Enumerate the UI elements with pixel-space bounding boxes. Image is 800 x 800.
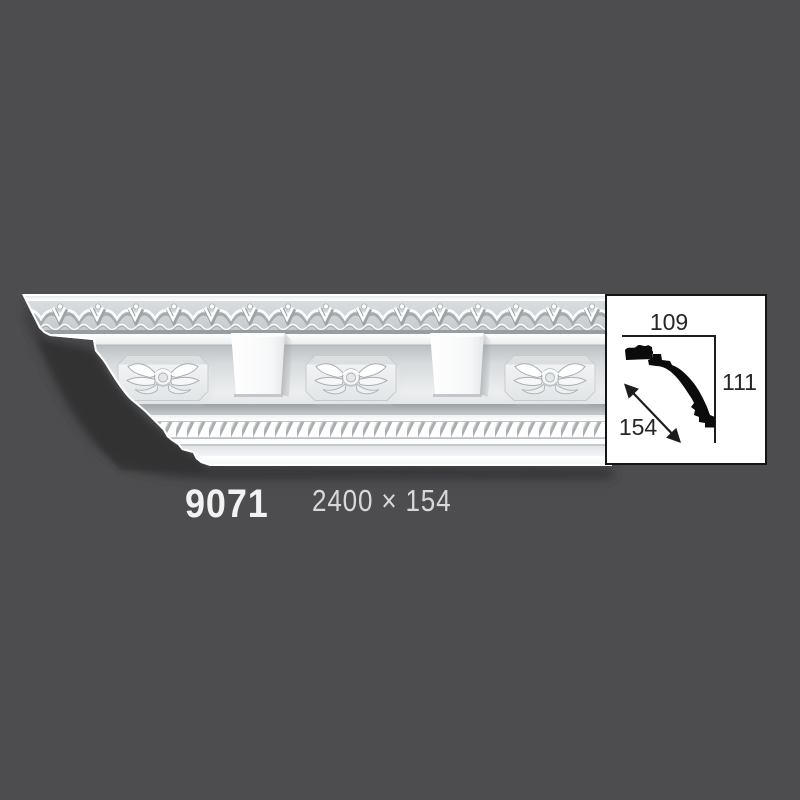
- product-card: 109 111 154 90712400 × 154: [0, 0, 800, 800]
- rosette-panel: [306, 356, 399, 404]
- profile-diagram: 109 111 154: [605, 294, 767, 465]
- modillion-block: [231, 333, 293, 397]
- rosette-panel: [118, 356, 211, 404]
- profile-top-width-label: 109: [649, 309, 687, 335]
- leaf-frieze-band: [20, 302, 614, 331]
- modillion-block: [430, 333, 492, 397]
- profile-dimension-box: 109 111 154: [605, 294, 767, 465]
- product-code: 9071: [185, 484, 269, 524]
- rosette-panel: [505, 356, 598, 404]
- profile-height-label: 111: [722, 369, 757, 395]
- product-size: 2400 × 154: [312, 485, 451, 516]
- caption: 90712400 × 154: [185, 484, 478, 524]
- profile-diagonal-label: 154: [618, 414, 657, 440]
